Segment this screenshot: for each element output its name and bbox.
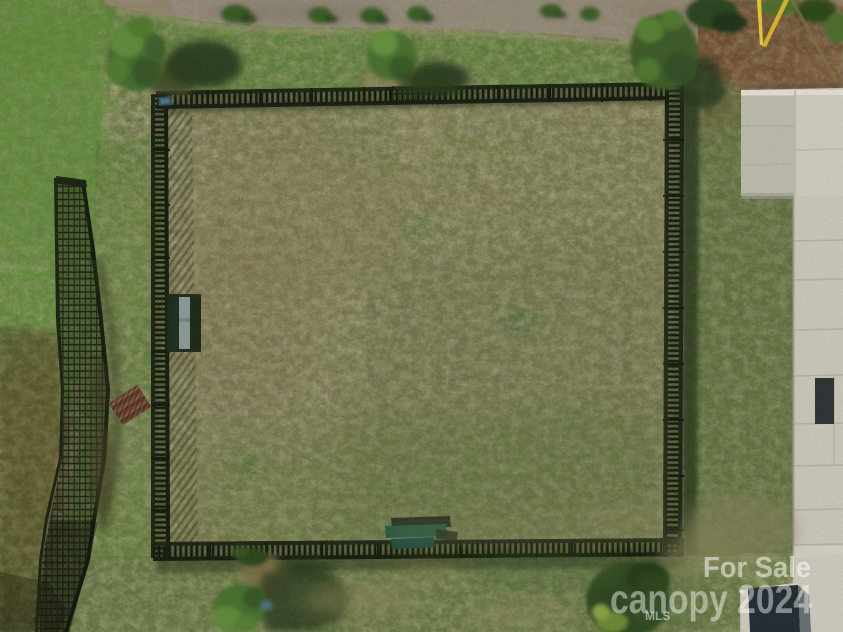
svg-text:canopy 2024: canopy 2024 — [610, 576, 812, 622]
svg-text:MLS: MLS — [645, 609, 670, 623]
